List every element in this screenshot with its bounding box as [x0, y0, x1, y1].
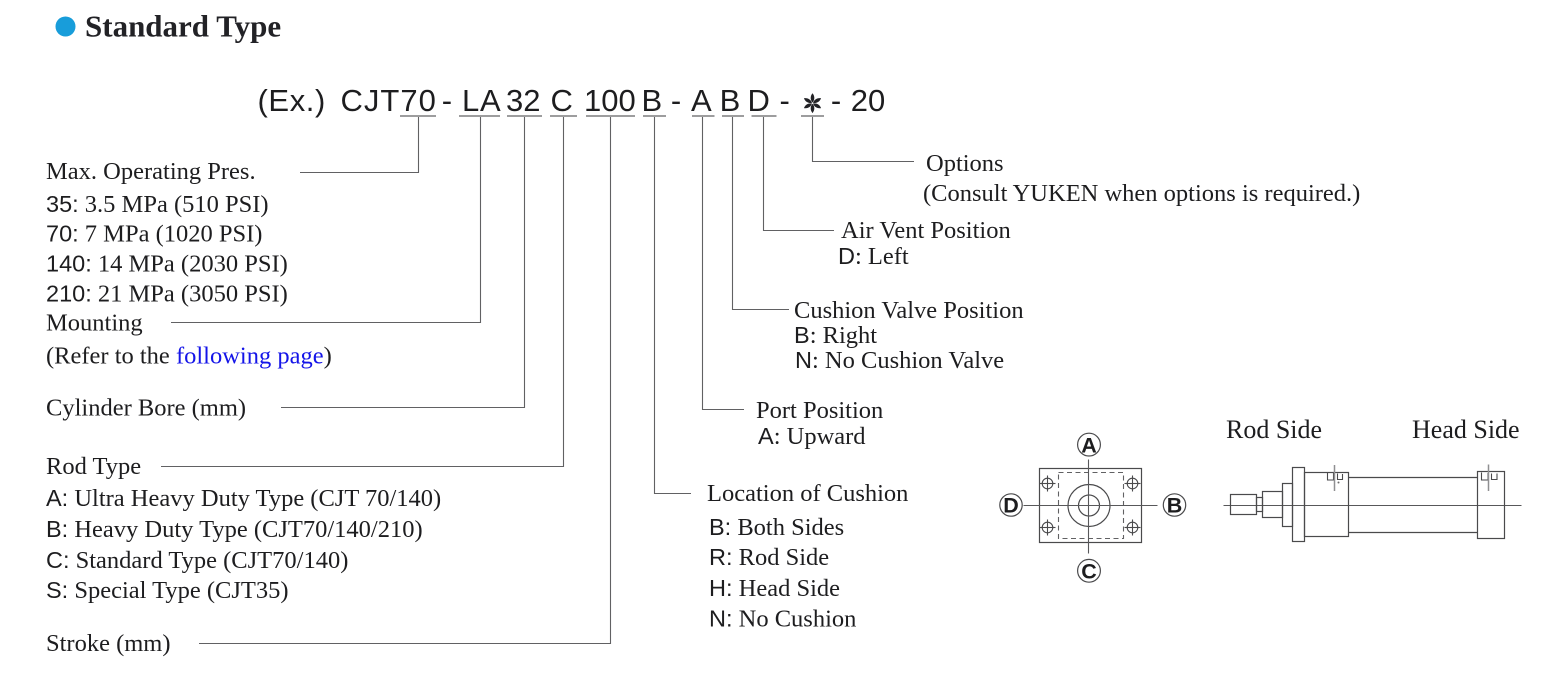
- svg-text:Standard Type: Standard Type: [85, 9, 281, 44]
- svg-text:Location of Cushion: Location of Cushion: [707, 480, 908, 507]
- svg-text:CJT70: CJT70: [341, 83, 437, 118]
- svg-text:D: D: [1003, 494, 1019, 518]
- svg-text:LA: LA: [462, 83, 502, 118]
- svg-text:S: Special Type (CJT35): S: Special Type (CJT35): [46, 577, 289, 604]
- svg-text:C: C: [1081, 560, 1097, 584]
- svg-text:70: 7 MPa (1020 PSI): 70: 7 MPa (1020 PSI): [46, 221, 262, 248]
- svg-text:Options: Options: [926, 150, 1004, 177]
- svg-text:D: Left: D: Left: [838, 243, 909, 270]
- svg-text:-: -: [780, 83, 790, 118]
- svg-text:B: B: [642, 83, 663, 118]
- svg-text:A: A: [691, 83, 712, 118]
- svg-text:B: Heavy Duty Type (CJT70/140/: B: Heavy Duty Type (CJT70/140/210): [46, 516, 423, 543]
- svg-text:R: Rod Side: R: Rod Side: [709, 544, 829, 571]
- svg-text:(Consult YUKEN when options is: (Consult YUKEN when options is required.…: [923, 180, 1360, 207]
- svg-text:B: B: [720, 83, 741, 118]
- svg-text:Head Side: Head Side: [1412, 415, 1520, 444]
- svg-text:A: Upward: A: Upward: [758, 423, 866, 450]
- svg-text:Rod Type: Rod Type: [46, 453, 141, 480]
- svg-text:100: 100: [584, 83, 636, 118]
- svg-text:Port Position: Port Position: [756, 397, 883, 424]
- svg-text:A: A: [1081, 433, 1097, 457]
- svg-text:Cushion Valve Position: Cushion Valve Position: [794, 297, 1024, 324]
- svg-text:A: Ultra Heavy Duty Type (CJT: A: Ultra Heavy Duty Type (CJT 70/140): [46, 485, 441, 512]
- svg-text:-: -: [831, 83, 841, 118]
- svg-text:N: No Cushion: N: No Cushion: [709, 606, 856, 633]
- svg-text:140: 14 MPa (2030 PSI): 140: 14 MPa (2030 PSI): [46, 251, 288, 278]
- svg-text:20: 20: [851, 83, 885, 118]
- svg-text:210: 21 MPa (3050 PSI): 210: 21 MPa (3050 PSI): [46, 281, 288, 308]
- svg-text:H: Head Side: H: Head Side: [709, 575, 840, 602]
- svg-text:Mounting: Mounting: [46, 310, 143, 337]
- svg-text:Stroke (mm): Stroke (mm): [46, 630, 171, 657]
- svg-text:32: 32: [506, 83, 540, 118]
- svg-text:-: -: [442, 83, 452, 118]
- svg-text:B: Both Sides: B: Both Sides: [709, 514, 844, 541]
- svg-text:C: C: [551, 83, 573, 118]
- svg-text:Rod Side: Rod Side: [1226, 415, 1322, 444]
- svg-text:(Refer to the following page): (Refer to the following page): [46, 343, 332, 370]
- svg-text:N: No Cushion Valve: N: No Cushion Valve: [795, 347, 1004, 374]
- svg-text:-: -: [671, 83, 681, 118]
- svg-text:Max. Operating Pres.: Max. Operating Pres.: [46, 158, 256, 185]
- svg-text:35: 3.5 MPa (510 PSI): 35: 3.5 MPa (510 PSI): [46, 191, 269, 218]
- svg-text:B: B: [1167, 494, 1183, 518]
- svg-text:(Ex.): (Ex.): [258, 83, 326, 118]
- svg-text:C: Standard Type (CJT70/140): C: Standard Type (CJT70/140): [46, 547, 348, 574]
- svg-text:Air Vent Position: Air Vent Position: [841, 217, 1011, 244]
- svg-text:Cylinder Bore (mm): Cylinder Bore (mm): [46, 395, 246, 422]
- svg-text:B: Right: B: Right: [794, 322, 877, 349]
- svg-text:D: D: [748, 83, 770, 118]
